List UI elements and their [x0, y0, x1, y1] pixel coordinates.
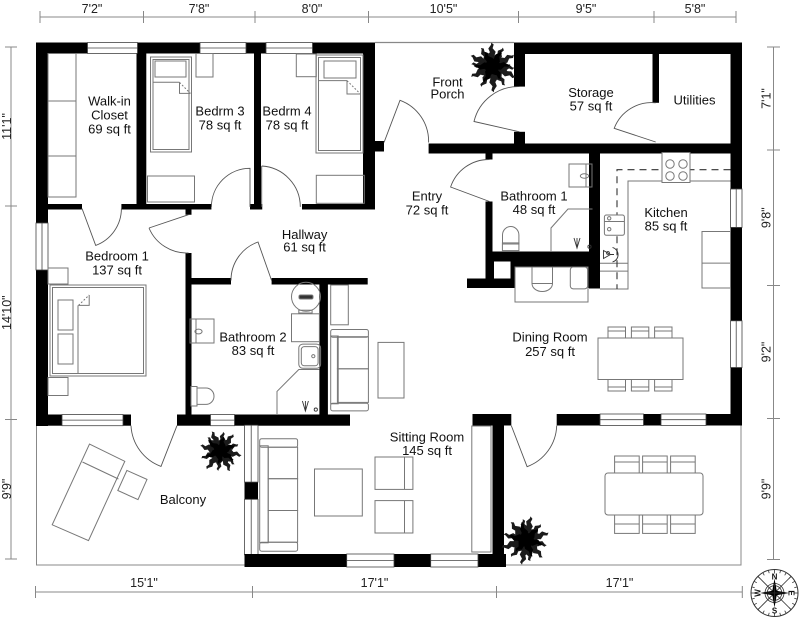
- svg-text:Closet: Closet: [91, 108, 128, 123]
- svg-text:9'9": 9'9": [0, 479, 14, 500]
- svg-text:69 sq ft: 69 sq ft: [88, 122, 131, 137]
- svg-text:14'10": 14'10": [0, 295, 14, 330]
- svg-text:17'1": 17'1": [606, 576, 634, 590]
- svg-text:Dining Room: Dining Room: [512, 330, 587, 345]
- svg-text:48 sq ft: 48 sq ft: [513, 202, 556, 217]
- svg-text:83 sq ft: 83 sq ft: [232, 343, 275, 358]
- svg-text:Walk-in: Walk-in: [88, 94, 131, 109]
- svg-text:57 sq ft: 57 sq ft: [570, 99, 613, 114]
- svg-text:72 sq ft: 72 sq ft: [406, 203, 449, 218]
- svg-text:78 sq ft: 78 sq ft: [266, 118, 309, 133]
- svg-text:9'9": 9'9": [760, 479, 774, 500]
- svg-text:257 sq ft: 257 sq ft: [525, 344, 575, 359]
- svg-text:85 sq ft: 85 sq ft: [645, 219, 688, 234]
- svg-text:137 sq ft: 137 sq ft: [92, 263, 142, 278]
- svg-text:Entry: Entry: [412, 189, 443, 204]
- svg-text:9'2": 9'2": [760, 342, 774, 363]
- svg-text:Bedroom 1: Bedroom 1: [85, 249, 149, 264]
- svg-text:9'8": 9'8": [760, 207, 774, 228]
- svg-text:11'1": 11'1": [0, 113, 14, 140]
- svg-text:E: E: [787, 590, 796, 596]
- svg-text:61 sq ft: 61 sq ft: [283, 240, 326, 255]
- svg-text:145 sq ft: 145 sq ft: [402, 443, 452, 458]
- svg-text:Porch: Porch: [431, 87, 465, 102]
- svg-text:W: W: [754, 589, 763, 597]
- svg-text:S: S: [772, 607, 778, 616]
- svg-text:7'8": 7'8": [189, 2, 210, 16]
- svg-text:10'5": 10'5": [430, 2, 458, 16]
- svg-text:5'8": 5'8": [685, 2, 706, 16]
- svg-text:Bedrm 4: Bedrm 4: [262, 104, 311, 119]
- svg-text:Balcony: Balcony: [160, 492, 207, 507]
- svg-text:7'2": 7'2": [82, 2, 103, 16]
- svg-text:Bedrm 3: Bedrm 3: [195, 104, 244, 119]
- svg-text:7'1": 7'1": [760, 88, 774, 109]
- svg-text:17'1": 17'1": [361, 576, 389, 590]
- svg-text:8'0": 8'0": [302, 2, 323, 16]
- svg-text:9'5": 9'5": [576, 2, 597, 16]
- svg-text:15'1": 15'1": [130, 576, 158, 590]
- svg-text:78 sq ft: 78 sq ft: [199, 118, 242, 133]
- svg-text:Utilities: Utilities: [674, 93, 716, 108]
- svg-text:N: N: [772, 573, 778, 582]
